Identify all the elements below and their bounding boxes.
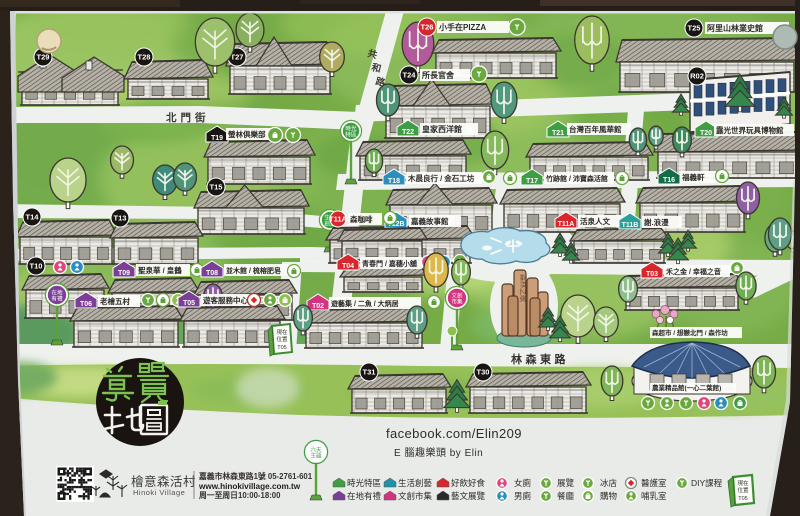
svg-text:聖泉華 / 皇鶴: 聖泉華 / 皇鶴 (138, 265, 182, 275)
svg-text:現在: 現在 (737, 479, 749, 487)
svg-text:在地有禮: 在地有禮 (347, 491, 382, 501)
svg-text:www.hinokivillage.com.tw: www.hinokivillage.com.tw (198, 482, 301, 491)
svg-text:活泉人文: 活泉人文 (580, 216, 610, 226)
svg-text:嘉義故事館: 嘉義故事館 (410, 216, 449, 226)
svg-text:T22: T22 (402, 129, 414, 136)
svg-text:螢林俱樂部: 螢林俱樂部 (228, 129, 266, 139)
svg-text:時光: 時光 (345, 125, 357, 133)
svg-text:T04: T04 (342, 263, 354, 270)
svg-text:T15: T15 (210, 183, 223, 192)
svg-text:R02: R02 (690, 72, 704, 81)
svg-text:嘉義市林森東路1號 05-2761-601: 嘉義市林森東路1號 05-2761-601 (198, 471, 313, 481)
svg-text:T13: T13 (114, 214, 127, 223)
svg-text:T20: T20 (700, 130, 712, 137)
svg-text:生活創藝: 生活創藝 (398, 478, 433, 488)
svg-text:木晨良行 / 金石工坊: 木晨良行 / 金石工坊 (407, 173, 475, 183)
svg-text:T11B: T11B (622, 222, 639, 229)
svg-text:醫護室: 醫護室 (641, 478, 667, 488)
svg-text:所長官舍: 所長官舍 (421, 70, 455, 80)
svg-text:Hinoki Village: Hinoki Village (133, 488, 185, 497)
svg-text:周一至周日10:00-18:00: 周一至周日10:00-18:00 (199, 491, 281, 500)
svg-text:T10: T10 (30, 262, 43, 271)
svg-text:謝.浪漫: 謝.浪漫 (644, 217, 669, 227)
svg-text:好飲好食: 好飲好食 (451, 478, 486, 488)
svg-text:位置: 位置 (276, 335, 288, 343)
svg-text:T18: T18 (388, 178, 400, 185)
svg-text:T09: T09 (118, 270, 130, 277)
svg-text:T21: T21 (552, 130, 564, 137)
svg-text:T11A: T11A (329, 215, 348, 224)
svg-text:老檜五村: 老檜五村 (99, 296, 130, 306)
svg-text:藝文展覽: 藝文展覽 (451, 491, 486, 501)
svg-text:展覽: 展覽 (557, 478, 575, 488)
svg-text:在地: 在地 (51, 289, 63, 297)
svg-text:有禮: 有禮 (51, 295, 63, 303)
svg-text:檜意森活村: 檜意森活村 (131, 474, 196, 489)
svg-text:皇家西洋館: 皇家西洋館 (422, 124, 462, 134)
svg-text:T02: T02 (312, 303, 324, 310)
svg-text:農業精品館(一心二葉館): 農業精品館(一心二葉館) (652, 383, 721, 392)
svg-text:T11A: T11A (558, 221, 575, 228)
svg-text:市集: 市集 (451, 298, 463, 306)
svg-text:森超市 / 想戀北門 / 森作坊: 森超市 / 想戀北門 / 森作坊 (652, 328, 728, 337)
svg-text:T14: T14 (26, 213, 40, 222)
svg-text:T19: T19 (211, 135, 223, 142)
svg-text:男廁: 男廁 (514, 491, 532, 501)
svg-text:T06: T06 (80, 301, 92, 308)
svg-text:T17: T17 (526, 178, 538, 185)
svg-text:阿里山林業史館: 阿里山林業史館 (707, 23, 763, 33)
svg-text:T30: T30 (477, 368, 490, 377)
svg-text:餐廳: 餐廳 (557, 491, 575, 501)
svg-text:竹跡館 / 沛寶森活館: 竹跡館 / 沛寶森活館 (545, 174, 608, 183)
svg-text:T05: T05 (738, 496, 747, 502)
svg-text:森咖啡: 森咖啡 (350, 214, 373, 224)
svg-text:T03: T03 (646, 271, 658, 278)
svg-text:福義軒: 福義軒 (681, 172, 705, 182)
svg-text:T31: T31 (363, 368, 376, 377)
svg-text:DIY課程: DIY課程 (691, 478, 723, 488)
svg-text:北門街: 北門街 (166, 111, 210, 124)
svg-text:T05: T05 (277, 345, 286, 351)
svg-text:T26: T26 (421, 23, 434, 32)
svg-text:小手在PIZZA: 小手在PIZZA (438, 22, 486, 32)
svg-text:位置: 位置 (737, 486, 749, 494)
svg-text:青春門 / 嘉穗小舖: 青春門 / 嘉穗小舖 (362, 259, 417, 268)
svg-text:森林之歌: 森林之歌 (519, 274, 528, 302)
svg-text:T08: T08 (206, 270, 218, 277)
svg-text:遊客服務中心: 遊客服務中心 (203, 295, 248, 305)
svg-text:哺乳室: 哺乳室 (641, 491, 667, 501)
svg-text:林森東路: 林森東路 (511, 352, 569, 366)
svg-text:T05: T05 (183, 300, 195, 307)
svg-text:遊藝集 / 二魚 / 大炳居: 遊藝集 / 二魚 / 大炳居 (331, 299, 399, 308)
svg-text:特區: 特區 (345, 131, 357, 139)
svg-text:文創市集: 文創市集 (398, 491, 433, 501)
svg-text:T29: T29 (37, 53, 50, 62)
svg-text:購物: 購物 (600, 491, 618, 501)
svg-text:E 腦趣樂頭 by Elin: E 腦趣樂頭 by Elin (394, 446, 483, 459)
svg-text:並木館 / 梳榕肥皂: 並木館 / 梳榕肥皂 (226, 266, 281, 275)
svg-text:T16: T16 (663, 177, 675, 184)
svg-text:T24: T24 (403, 71, 417, 80)
svg-text:冰店: 冰店 (600, 478, 618, 488)
svg-text:女廁: 女廁 (514, 478, 532, 488)
svg-text:現在: 現在 (276, 328, 288, 336)
svg-text:禾之金 / 幸福之音: 禾之金 / 幸福之音 (666, 267, 721, 276)
svg-text:文創: 文創 (451, 292, 463, 300)
svg-text:主題: 主題 (310, 452, 322, 460)
svg-text:台灣百年風華館: 台灣百年風華館 (569, 124, 622, 134)
svg-text:facebook.com/Elin209: facebook.com/Elin209 (386, 426, 522, 441)
svg-text:時光特區: 時光特區 (347, 478, 381, 488)
svg-text:T28: T28 (138, 53, 151, 62)
svg-text:T25: T25 (688, 24, 701, 33)
svg-text:露光世界玩具博物館: 露光世界玩具博物館 (716, 125, 784, 135)
svg-text:六天: 六天 (310, 446, 322, 454)
